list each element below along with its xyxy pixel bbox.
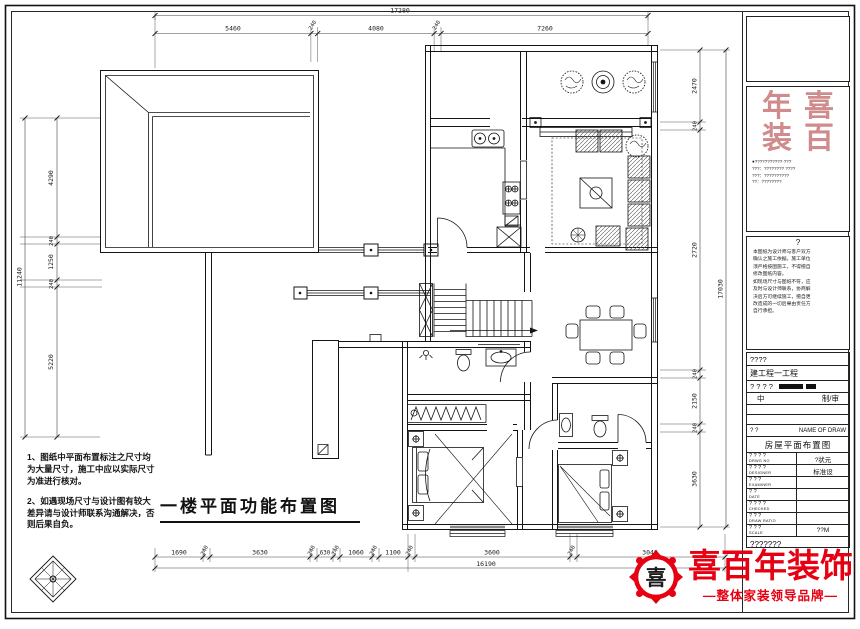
note-line: 1、图纸中平面布置标注之尺寸均为大量尺寸，施工中应以实际尺寸为准进行核对。 <box>27 452 157 488</box>
table-row: ? ?DATE <box>747 489 849 501</box>
redacted-bar <box>806 384 816 389</box>
dim-label: 2720 <box>691 242 699 258</box>
courtyard-walls <box>101 71 319 253</box>
dim-label: 240 <box>49 279 55 289</box>
description-text: 本图纸为设计师与客户双方 确认之施工依据，施工单位 须严格按图施工，不得擅自 修… <box>747 247 849 318</box>
name-of-draw-row: ? ? NAME OF DRAW <box>747 425 849 437</box>
row-value <box>797 489 849 500</box>
pillow <box>418 475 428 494</box>
ensuite-bathroom <box>560 414 609 438</box>
row-value <box>797 501 849 512</box>
bedroom-right <box>559 451 628 523</box>
sink-basin <box>491 352 511 363</box>
sofa-cushion <box>576 130 598 152</box>
chair <box>610 306 624 318</box>
title-block-row: 中 制/审 <box>747 393 849 405</box>
dim-label: 1690 <box>171 549 187 557</box>
row-text: NAME OF DRAW <box>799 428 846 434</box>
sofa-cushion <box>628 204 650 226</box>
title-block-table: ???? 建工程一工程 ? ? ? ? 中 制/审 ? ? NAME OF DR… <box>746 352 850 548</box>
wardrobe <box>408 405 486 423</box>
chair <box>634 324 646 338</box>
dim-label: 4290 <box>47 170 55 186</box>
title-block-description-cell: ? 本图纸为设计师与客户双方 确认之施工依据，施工单位 须严格按图施工，不得擅自… <box>746 236 850 350</box>
dim-label: 17280 <box>390 7 410 15</box>
toilet-tank <box>456 350 471 355</box>
logo-seal-icon: 喜 <box>627 548 685 606</box>
drawing-name: 房屋平面布置图 <box>765 439 832 451</box>
sofa-cushion <box>628 156 650 178</box>
seal-char: 年 <box>756 91 798 123</box>
row-sublabel: DESIGNER <box>749 471 794 476</box>
dim-label: 5460 <box>225 25 241 33</box>
company-tagline: —整体家装领导品牌— <box>688 585 853 604</box>
dim-label: 16190 <box>476 560 496 568</box>
table-row: ? ? ? ?DRWG NO ?状元 <box>747 453 849 465</box>
legend-diamond-symbol <box>30 556 76 602</box>
dim-label: 240 <box>307 545 317 557</box>
chair <box>566 324 578 338</box>
logo-icon-char: 喜 <box>646 566 667 590</box>
table-row: ? ? ?EXAMINER <box>747 477 849 489</box>
row-sublabel: DRAW RATIO <box>749 519 794 524</box>
bathroom <box>420 349 517 371</box>
company-name: 喜百年装饰 <box>688 548 853 584</box>
sofa-cushion <box>600 130 622 152</box>
toilet-bowl <box>458 355 470 371</box>
bedroom-left <box>409 432 513 525</box>
dim-label: 3630 <box>252 549 268 557</box>
stair-direction-arrow <box>530 328 538 334</box>
dim-label: 240 <box>432 20 442 32</box>
dim-label: 2150 <box>691 393 699 409</box>
pillow <box>600 470 609 488</box>
title-block-seal-cell: 年 喜 装 百 ●???????????·??? ???：???????? ??… <box>746 86 850 232</box>
row-sublabel: DATE <box>749 495 794 500</box>
dim-label: 240 <box>369 545 379 557</box>
dim-label: 1250 <box>47 254 55 270</box>
dim-label: 240 <box>331 545 341 557</box>
house-walls <box>338 45 658 530</box>
row-value: ?状元 <box>797 453 849 464</box>
plant-icon <box>623 71 645 93</box>
dim-label: 4080 <box>368 25 384 33</box>
dim-label: 240 <box>49 236 55 246</box>
staircase <box>420 284 539 338</box>
row-text: 制/审 <box>822 393 839 404</box>
row-value <box>797 513 849 524</box>
dining-set <box>566 306 646 364</box>
dim-label: 17030 <box>717 279 725 299</box>
redacted-bar <box>779 384 803 389</box>
living-room <box>540 71 650 250</box>
shower-icon <box>423 350 428 355</box>
dim-label: 240 <box>200 545 210 557</box>
sofa-cushion <box>628 180 650 202</box>
sofa-seat <box>596 226 620 246</box>
dim-label: 240 <box>567 545 577 557</box>
dim-label: 240 <box>693 423 699 433</box>
kitchen <box>431 130 521 247</box>
row-sublabel: EXAMINER <box>749 483 794 488</box>
row-sublabel: DRWG NO <box>749 459 794 464</box>
title-block-empty-row <box>747 415 849 425</box>
company-seal: 年 喜 装 百 <box>756 91 840 155</box>
row-value <box>797 477 849 488</box>
table-row: ? ? ? ?CHECKED <box>747 501 849 513</box>
dim-label: 3630 <box>691 471 699 487</box>
row-text: ???? <box>750 355 767 364</box>
page-title: 一楼平面功能布置图 <box>160 492 360 523</box>
plant-icon <box>561 71 583 93</box>
row-sublabel: SCALE <box>749 531 794 536</box>
table-row: ? ? ?SCALE ??M <box>747 525 849 537</box>
table-row: ? ? ? ?DESIGNER 标准设 <box>747 465 849 477</box>
logo-text: 喜百年装饰 —整体家装领导品牌— <box>688 548 853 604</box>
toilet-bowl <box>594 421 606 437</box>
dim-label: 2470 <box>691 78 699 94</box>
toilet-tank <box>592 416 608 421</box>
drawing-sheet: 17280 5460 240 4080 240 7260 11240 4290 … <box>0 0 860 624</box>
note-line: 2、如遇现场尺寸与设计图有较大差异请与设计师联系沟通解决，否则后果自负。 <box>27 496 157 532</box>
company-address: ●???????????·??? ???：???????? ???? ???：?… <box>747 155 849 186</box>
project-name: 建工程一工程 <box>750 368 798 379</box>
dining-table <box>580 320 632 350</box>
chair <box>610 352 624 364</box>
title-block-row: ? ? ? ? <box>747 381 849 393</box>
dim-label: 240 <box>693 121 699 131</box>
seal-char: 装 <box>756 123 798 155</box>
seal-char: 百 <box>798 123 840 155</box>
dim-label: 240 <box>405 545 415 557</box>
table-row: ? ? ?DRAW RATIO <box>747 513 849 525</box>
notes: 1、图纸中平面布置标注之尺寸均为大量尺寸，施工中应以实际尺寸为准进行核对。 2、… <box>27 452 157 539</box>
dim-label: 11240 <box>16 267 24 287</box>
seal-char: 喜 <box>798 91 840 123</box>
yard-corridor-walls <box>206 253 382 459</box>
dim-label: 1100 <box>385 549 401 557</box>
company-logo: 喜 喜百年装饰 —整体家装领导品牌— <box>627 548 853 616</box>
title-block-empty-cell <box>746 16 850 82</box>
dim-label: 630 <box>320 551 331 557</box>
title-block-row: ???? <box>747 353 849 366</box>
dim-label: 1060 <box>348 549 364 557</box>
chair <box>586 352 600 364</box>
dim-label: 240 <box>308 20 318 32</box>
row-value: 标准设 <box>797 465 849 476</box>
dim-label: 7260 <box>537 25 553 33</box>
title-block-empty-row <box>747 405 849 415</box>
row-sublabel: CHECKED <box>749 507 794 512</box>
chair <box>586 306 600 318</box>
row-value: ??M <box>797 525 849 536</box>
dim-label: 3600 <box>484 549 500 557</box>
row-text: 中 <box>757 393 765 404</box>
drawing-name-row: 房屋平面布置图 <box>747 437 849 453</box>
row-text: ? ? <box>750 428 758 434</box>
sofa-corner <box>626 228 648 250</box>
bed <box>559 465 612 523</box>
project-name-row: 建工程一工程 <box>747 366 849 381</box>
description-header: ? <box>747 238 849 247</box>
dim-label: 240 <box>693 369 699 379</box>
dim-label: 5220 <box>47 354 55 370</box>
row-text: ? ? ? ? <box>750 382 773 391</box>
